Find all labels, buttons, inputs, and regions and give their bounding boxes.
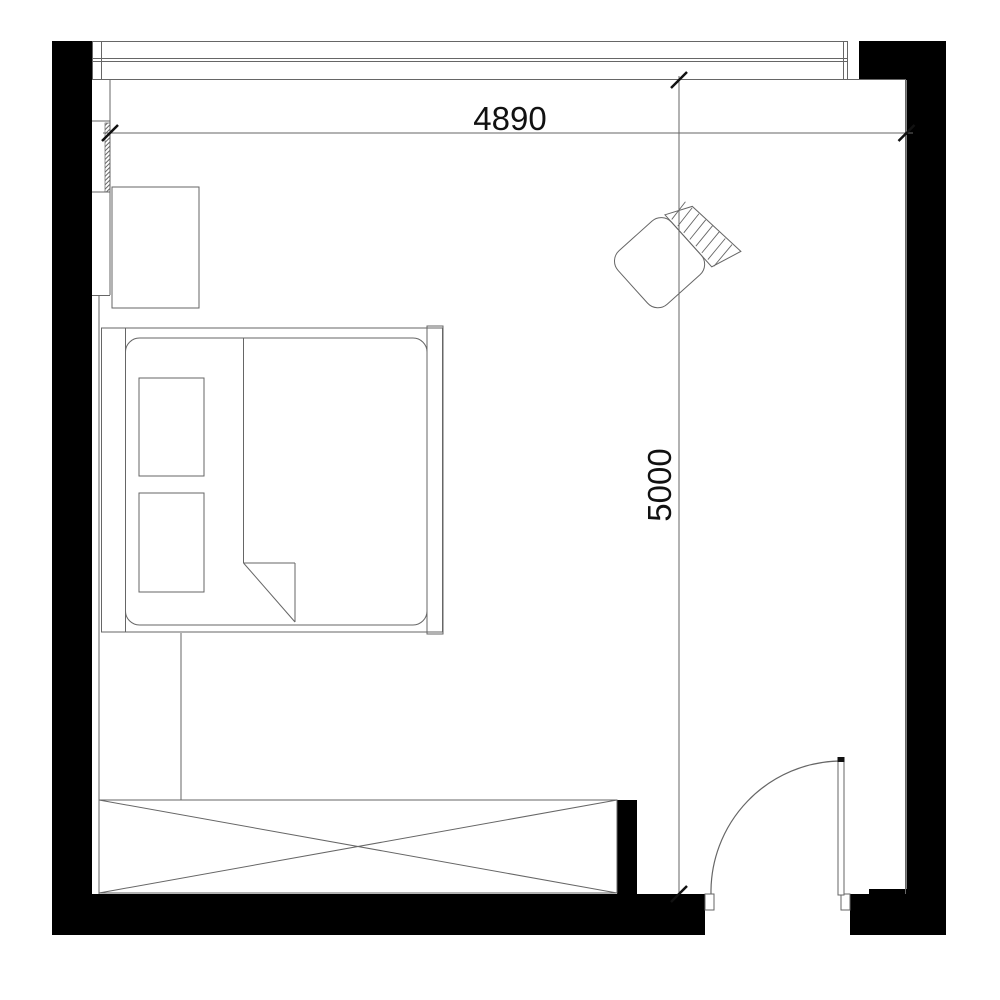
- floor-plan-page: 4890 5000: [0, 0, 1000, 1000]
- door: [705, 757, 850, 910]
- window: [92, 41, 906, 80]
- door-jamb-left: [705, 894, 714, 910]
- door-swing-arc: [711, 761, 839, 894]
- nightstand-outline: [112, 187, 199, 308]
- dresser: [99, 800, 617, 893]
- wall-right: [907, 41, 947, 935]
- wall-finish: [92, 80, 906, 894]
- mattress: [126, 338, 428, 625]
- dim-v-label: 5000: [641, 448, 678, 521]
- wall-dresser-stub: [617, 800, 637, 894]
- blanket-fold-diagonal: [244, 563, 296, 622]
- door-jamb-right: [841, 894, 850, 910]
- door-leaf: [838, 759, 844, 895]
- bed: [102, 326, 444, 634]
- bed-frame: [102, 328, 443, 632]
- armchair: [609, 190, 741, 321]
- door-hinge-cap: [838, 757, 845, 762]
- nightstand: [112, 187, 199, 308]
- dim-h-label: 4890: [473, 100, 546, 137]
- wall-bottom-right-step: [869, 889, 907, 895]
- wall-bottom-left: [52, 894, 705, 935]
- armchair-backrest: [665, 193, 741, 272]
- wall-bottom-right: [850, 894, 907, 935]
- wall-left: [52, 41, 92, 935]
- floor-plan-drawing: 4890 5000: [0, 0, 1000, 1000]
- armchair-seat: [609, 212, 711, 314]
- pillow-2: [139, 493, 204, 592]
- blanket: [244, 338, 296, 622]
- bed-footboard: [427, 326, 443, 634]
- dimension-vertical: 5000: [641, 72, 687, 902]
- pillow-1: [139, 378, 204, 476]
- dimension-horizontal: 4890: [102, 100, 915, 141]
- wall-top-right-stub: [859, 41, 907, 80]
- walls: [52, 41, 946, 935]
